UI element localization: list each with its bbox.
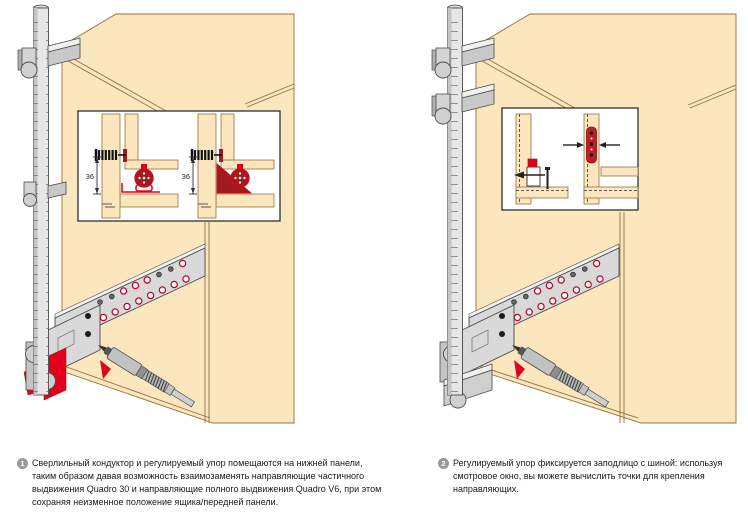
step-number-badge: 1: [17, 458, 28, 469]
cabinet-bottom-section: [120, 194, 178, 207]
adjustable-stop-red-cap: [528, 159, 537, 167]
drawer-bottom-section: [221, 160, 274, 169]
cabinet-bottom-section: [216, 194, 274, 207]
caption-line: смотровое окно, вы можете вычислить точк…: [453, 470, 738, 483]
clamp-knob: [435, 108, 451, 124]
caption-step-1: 1 Сверлильный кондуктор и регулируемый у…: [17, 457, 399, 509]
caption-line: Сверлильный кондуктор и регулируемый упо…: [32, 457, 399, 470]
caption-line: направляющих.: [453, 483, 738, 496]
caption-line: Регулируемый упор фиксируется заподлицо …: [453, 457, 738, 470]
detail-inset-box: 36: [78, 111, 280, 221]
caption-line: выдвижения Quadro 30 и направляющие полн…: [32, 483, 399, 496]
dimension-label: 36: [86, 172, 94, 181]
adjustable-stop-body: [527, 167, 540, 186]
drawer-bottom-section: [125, 160, 178, 169]
clamp-knob: [435, 62, 451, 78]
step-number-badge: 2: [438, 458, 449, 469]
front-panel-section: [198, 114, 216, 218]
drawer-bottom-section: [601, 167, 638, 176]
front-panel-section: [102, 114, 120, 218]
detail-inset-box: [502, 108, 638, 210]
figure-2-illustration: [400, 0, 748, 450]
caption-line: сохраняя неизменное положение ящика/пере…: [32, 496, 399, 509]
dimension-label: 36: [182, 172, 190, 181]
clamp-knob: [21, 62, 37, 78]
clamp-knob: [24, 194, 37, 207]
bottom-panel-section: [516, 187, 568, 198]
viewing-window-stop: [587, 127, 597, 163]
caption-line: таким образом давая возможность взаимоза…: [32, 470, 399, 483]
caption-step-2: 2 Регулируемый упор фиксируется заподлиц…: [438, 457, 738, 496]
cabinet-panel: [459, 14, 736, 423]
bottom-panel-section: [584, 187, 638, 198]
figure-1-illustration: 36: [0, 0, 400, 450]
